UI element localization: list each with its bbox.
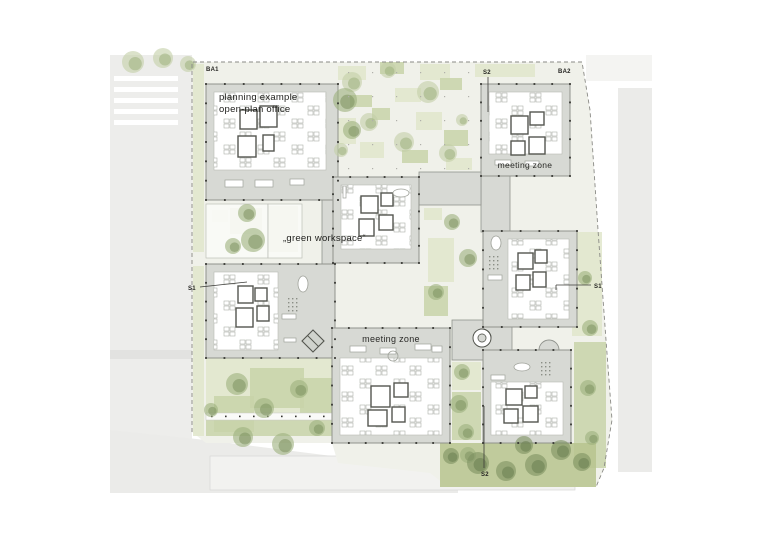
column-dot bbox=[557, 326, 559, 328]
column-dot bbox=[399, 442, 401, 444]
column-dot bbox=[576, 269, 578, 271]
column-dot bbox=[480, 120, 482, 122]
column-dot bbox=[449, 423, 451, 425]
column-dot bbox=[482, 326, 484, 328]
core-room bbox=[236, 308, 253, 327]
column-dot bbox=[262, 83, 264, 85]
column-dot bbox=[576, 326, 578, 328]
core-room bbox=[530, 112, 544, 125]
column-dot bbox=[224, 357, 226, 359]
core-room bbox=[518, 253, 533, 269]
context-block-northeast bbox=[586, 55, 652, 81]
column-dot bbox=[297, 263, 299, 265]
column-dot bbox=[539, 326, 541, 328]
column-dot bbox=[569, 83, 571, 85]
seat-dot bbox=[292, 306, 293, 307]
seat-dot bbox=[493, 264, 494, 265]
garden-court bbox=[268, 204, 302, 258]
seat-dot bbox=[288, 298, 289, 299]
column-dot bbox=[418, 211, 420, 213]
grid-dot bbox=[372, 120, 373, 121]
tree-crown bbox=[463, 428, 473, 438]
core-room bbox=[535, 250, 547, 263]
column-dot bbox=[520, 326, 522, 328]
furniture bbox=[225, 180, 243, 187]
grid-dot bbox=[468, 96, 469, 97]
tree-crown bbox=[230, 242, 240, 252]
label-s2-top: S2 bbox=[483, 70, 491, 76]
tree-crown bbox=[385, 66, 395, 76]
column-dot bbox=[569, 120, 571, 122]
column-dot bbox=[449, 365, 451, 367]
tree-crown bbox=[578, 458, 589, 469]
tree-crown bbox=[159, 54, 171, 66]
column-dot bbox=[449, 442, 451, 444]
column-dot bbox=[480, 102, 482, 104]
seat-dot bbox=[545, 370, 546, 371]
column-dot bbox=[482, 269, 484, 271]
seat-dot bbox=[541, 374, 542, 375]
column-dot bbox=[262, 199, 264, 201]
column-dot bbox=[418, 228, 420, 230]
column-dot bbox=[349, 262, 351, 264]
column-dot bbox=[418, 193, 420, 195]
column-dot bbox=[449, 346, 451, 348]
tree-crown bbox=[338, 147, 346, 155]
column-dot bbox=[337, 180, 339, 182]
column-dot bbox=[334, 338, 336, 340]
tree-crown bbox=[348, 126, 359, 137]
tree-crown bbox=[582, 275, 590, 283]
sidewalk-band bbox=[110, 350, 192, 359]
column-dot bbox=[337, 102, 339, 104]
core-room bbox=[238, 286, 253, 303]
column-dot bbox=[432, 327, 434, 329]
core-room bbox=[533, 272, 546, 287]
core-room bbox=[523, 406, 538, 422]
seat-dot bbox=[493, 256, 494, 257]
column-dot bbox=[482, 230, 484, 232]
core-room bbox=[255, 288, 267, 301]
furniture bbox=[488, 275, 502, 280]
column-dot bbox=[332, 262, 334, 264]
column-dot bbox=[332, 176, 334, 178]
grid-dot bbox=[468, 144, 469, 145]
grid-dot bbox=[396, 72, 397, 73]
column-dot bbox=[243, 199, 245, 201]
tree-crown bbox=[400, 138, 412, 150]
column-dot bbox=[334, 357, 336, 359]
planting-patch bbox=[420, 64, 450, 80]
core-room bbox=[516, 275, 530, 290]
grid-dot bbox=[396, 168, 397, 169]
neighbor-building-east bbox=[618, 88, 652, 472]
column-dot bbox=[332, 211, 334, 213]
crosswalk-stripe bbox=[114, 76, 178, 81]
column-dot bbox=[535, 442, 537, 444]
column-dot bbox=[569, 138, 571, 140]
grid-dot bbox=[444, 96, 445, 97]
corridor-connector bbox=[481, 176, 510, 232]
column-dot bbox=[331, 327, 333, 329]
grid-dot bbox=[372, 96, 373, 97]
tree-crown bbox=[520, 441, 531, 452]
column-dot bbox=[334, 320, 336, 322]
column-dot bbox=[449, 385, 451, 387]
seat-dot bbox=[549, 362, 550, 363]
column-dot bbox=[260, 357, 262, 359]
column-dot bbox=[337, 160, 339, 162]
tree-crown bbox=[243, 209, 254, 220]
pergola-post bbox=[253, 416, 255, 418]
pergola-post bbox=[309, 416, 311, 418]
column-dot bbox=[224, 83, 226, 85]
column-dot bbox=[334, 282, 336, 284]
furniture bbox=[282, 314, 296, 319]
seat-dot bbox=[296, 302, 297, 303]
pergola-post bbox=[295, 416, 297, 418]
road-west bbox=[110, 55, 192, 480]
seat-dot bbox=[541, 362, 542, 363]
column-dot bbox=[482, 249, 484, 251]
column-dot bbox=[432, 442, 434, 444]
column-dot bbox=[348, 327, 350, 329]
column-dot bbox=[297, 357, 299, 359]
column-dot bbox=[205, 83, 207, 85]
column-dot bbox=[316, 357, 318, 359]
column-dot bbox=[570, 386, 572, 388]
furniture bbox=[255, 180, 273, 187]
column-dot bbox=[205, 338, 207, 340]
tree-crown bbox=[314, 424, 324, 434]
column-dot bbox=[382, 442, 384, 444]
pergola-post bbox=[281, 416, 283, 418]
column-dot bbox=[401, 262, 403, 264]
column-dot bbox=[576, 230, 578, 232]
label-meeting-zone-south: meeting zone bbox=[362, 334, 420, 344]
column-dot bbox=[553, 442, 555, 444]
column-dot bbox=[539, 230, 541, 232]
column-dot bbox=[482, 368, 484, 370]
building-east-office-block bbox=[483, 231, 577, 327]
crosswalk-stripe bbox=[114, 87, 178, 92]
seat-dot bbox=[549, 370, 550, 371]
core-room bbox=[392, 407, 405, 422]
column-dot bbox=[498, 83, 500, 85]
column-dot bbox=[331, 346, 333, 348]
column-dot bbox=[569, 157, 571, 159]
grid-dot bbox=[468, 72, 469, 73]
tree-crown bbox=[464, 254, 475, 265]
corridor-connector bbox=[419, 172, 481, 205]
grid-dot bbox=[396, 120, 397, 121]
column-dot bbox=[449, 327, 451, 329]
column-dot bbox=[551, 83, 553, 85]
grid-dot bbox=[348, 96, 349, 97]
tree-crown bbox=[208, 407, 216, 415]
column-dot bbox=[279, 263, 281, 265]
column-dot bbox=[576, 249, 578, 251]
tree-crown bbox=[239, 433, 251, 445]
column-dot bbox=[299, 83, 301, 85]
planting-patch bbox=[424, 208, 442, 220]
grid-dot bbox=[372, 72, 373, 73]
column-dot bbox=[517, 349, 519, 351]
seat-dot bbox=[493, 268, 494, 269]
column-dot bbox=[480, 83, 482, 85]
seat-dot bbox=[296, 298, 297, 299]
core-room bbox=[506, 389, 522, 405]
column-dot bbox=[535, 349, 537, 351]
label-green-workspace: „green workspace“ bbox=[283, 233, 366, 244]
seat-dot bbox=[497, 260, 498, 261]
column-dot bbox=[520, 230, 522, 232]
desk-clusters bbox=[340, 358, 442, 435]
furniture bbox=[290, 179, 304, 185]
column-dot bbox=[551, 175, 553, 177]
seat-dot bbox=[541, 370, 542, 371]
site-plan-page: BA1 S2 BA2 planning example open-plan of… bbox=[0, 0, 780, 552]
seat-dot bbox=[292, 310, 293, 311]
seat-dot bbox=[549, 366, 550, 367]
core-room bbox=[511, 116, 528, 134]
column-dot bbox=[516, 175, 518, 177]
site-plan-drawing: BA1 S2 BA2 planning example open-plan of… bbox=[0, 0, 780, 552]
column-dot bbox=[205, 102, 207, 104]
seat-dot bbox=[549, 374, 550, 375]
grid-dot bbox=[396, 96, 397, 97]
column-dot bbox=[205, 320, 207, 322]
seat-dot bbox=[545, 374, 546, 375]
column-dot bbox=[517, 442, 519, 444]
seat-dot bbox=[497, 264, 498, 265]
column-dot bbox=[260, 263, 262, 265]
column-dot bbox=[331, 385, 333, 387]
planting-patch bbox=[444, 130, 468, 146]
column-dot bbox=[570, 349, 572, 351]
tree-crown bbox=[295, 385, 306, 396]
column-dot bbox=[349, 176, 351, 178]
grid-dot bbox=[420, 96, 421, 97]
column-dot bbox=[516, 83, 518, 85]
tree-crown bbox=[233, 379, 246, 392]
tree-crown bbox=[460, 117, 467, 124]
grid-dot bbox=[420, 168, 421, 169]
tree-crown bbox=[532, 460, 545, 473]
seat-dot bbox=[497, 256, 498, 257]
column-dot bbox=[418, 176, 420, 178]
grid-dot bbox=[444, 168, 445, 169]
core-room bbox=[361, 196, 378, 213]
planting-patch bbox=[440, 78, 462, 90]
column-dot bbox=[500, 349, 502, 351]
tree-crown bbox=[365, 118, 376, 129]
label-s1-west: S1 bbox=[188, 286, 196, 292]
column-dot bbox=[500, 442, 502, 444]
column-dot bbox=[318, 199, 320, 201]
pergola-post bbox=[323, 416, 325, 418]
tree-crown bbox=[474, 458, 487, 471]
tree-crown bbox=[557, 446, 569, 458]
column-dot bbox=[576, 307, 578, 309]
column-dot bbox=[576, 288, 578, 290]
column-dot bbox=[480, 175, 482, 177]
column-dot bbox=[480, 138, 482, 140]
column-dot bbox=[337, 122, 339, 124]
pergola-post bbox=[239, 416, 241, 418]
grid-dot bbox=[348, 120, 349, 121]
seat-dot bbox=[545, 362, 546, 363]
column-dot bbox=[281, 199, 283, 201]
grid-dot bbox=[372, 168, 373, 169]
furniture bbox=[415, 344, 431, 350]
column-dot bbox=[367, 176, 369, 178]
seat-dot bbox=[292, 302, 293, 303]
crosswalk-stripe bbox=[114, 109, 178, 114]
column-dot bbox=[482, 386, 484, 388]
column-dot bbox=[281, 83, 283, 85]
column-dot bbox=[569, 175, 571, 177]
tree-crown bbox=[248, 235, 262, 249]
grid-dot bbox=[372, 144, 373, 145]
column-dot bbox=[205, 301, 207, 303]
column-dot bbox=[279, 357, 281, 359]
furniture bbox=[432, 346, 442, 352]
grid-dot bbox=[444, 144, 445, 145]
column-dot bbox=[205, 263, 207, 265]
core-room bbox=[368, 410, 387, 426]
core-room bbox=[257, 306, 269, 321]
core-room bbox=[263, 135, 274, 151]
tree-crown bbox=[448, 452, 458, 462]
column-dot bbox=[365, 327, 367, 329]
column-dot bbox=[569, 102, 571, 104]
column-dot bbox=[205, 180, 207, 182]
column-dot bbox=[399, 327, 401, 329]
column-dot bbox=[401, 176, 403, 178]
tree-crown bbox=[185, 60, 195, 70]
core-room bbox=[381, 193, 393, 206]
column-dot bbox=[501, 230, 503, 232]
furniture bbox=[350, 346, 366, 352]
column-dot bbox=[570, 424, 572, 426]
column-dot bbox=[334, 301, 336, 303]
crosswalk-stripe bbox=[114, 120, 178, 125]
column-dot bbox=[224, 263, 226, 265]
column-dot bbox=[299, 199, 301, 201]
spiral-stair-core bbox=[478, 334, 486, 342]
column-dot bbox=[498, 175, 500, 177]
grid-dot bbox=[420, 144, 421, 145]
grid-dot bbox=[468, 168, 469, 169]
column-dot bbox=[205, 199, 207, 201]
furniture bbox=[491, 375, 505, 380]
grid-dot bbox=[444, 120, 445, 121]
building-meeting-zone-south-block bbox=[332, 328, 450, 443]
seat-dot bbox=[288, 310, 289, 311]
oval-table bbox=[393, 189, 409, 197]
seat-dot bbox=[489, 256, 490, 257]
column-dot bbox=[534, 175, 536, 177]
core-room bbox=[238, 136, 256, 157]
label-ba1: BA1 bbox=[206, 67, 219, 73]
seat-dot bbox=[497, 268, 498, 269]
column-dot bbox=[415, 442, 417, 444]
tree-crown bbox=[279, 439, 292, 452]
column-dot bbox=[337, 83, 339, 85]
building-southeast-office-block bbox=[483, 340, 571, 443]
furniture bbox=[284, 338, 296, 342]
planting-patch bbox=[395, 88, 421, 102]
column-dot bbox=[480, 157, 482, 159]
label-planning-example: planning example bbox=[219, 92, 297, 103]
label-open-plan-office: open-plan office bbox=[219, 104, 290, 115]
seat-dot bbox=[489, 264, 490, 265]
column-dot bbox=[224, 199, 226, 201]
tree-crown bbox=[260, 404, 272, 416]
seat-dot bbox=[541, 366, 542, 367]
oval-table bbox=[514, 363, 530, 371]
column-dot bbox=[482, 349, 484, 351]
column-dot bbox=[415, 327, 417, 329]
planting-patch bbox=[428, 238, 454, 282]
column-dot bbox=[418, 245, 420, 247]
building-west-office-block bbox=[206, 264, 335, 358]
planting-patch bbox=[402, 150, 428, 163]
furniture bbox=[343, 186, 346, 198]
column-dot bbox=[205, 282, 207, 284]
grid-dot bbox=[396, 144, 397, 145]
column-dot bbox=[337, 199, 339, 201]
tree-crown bbox=[424, 87, 437, 100]
core-room bbox=[379, 215, 393, 230]
tree-crown bbox=[340, 95, 354, 109]
seat-dot bbox=[489, 260, 490, 261]
label-s1-east: S1 bbox=[594, 284, 602, 290]
oval-table bbox=[491, 236, 501, 250]
column-dot bbox=[553, 349, 555, 351]
column-dot bbox=[331, 442, 333, 444]
grid-dot bbox=[444, 72, 445, 73]
column-dot bbox=[331, 404, 333, 406]
core-room bbox=[529, 137, 545, 154]
tree-crown bbox=[587, 324, 597, 334]
column-dot bbox=[205, 122, 207, 124]
column-dot bbox=[243, 83, 245, 85]
pergola-post bbox=[225, 416, 227, 418]
seat-dot bbox=[296, 306, 297, 307]
label-ba2: BA2 bbox=[558, 69, 571, 75]
tree-crown bbox=[129, 57, 142, 70]
column-dot bbox=[534, 83, 536, 85]
column-dot bbox=[332, 228, 334, 230]
seat-dot bbox=[296, 310, 297, 311]
building-green-workspace-block bbox=[333, 177, 419, 263]
planting-patch bbox=[193, 64, 204, 252]
planting-patch bbox=[416, 112, 442, 130]
column-dot bbox=[557, 230, 559, 232]
column-dot bbox=[337, 141, 339, 143]
tree-crown bbox=[449, 218, 459, 228]
column-dot bbox=[332, 193, 334, 195]
column-dot bbox=[570, 368, 572, 370]
tree-crown bbox=[589, 435, 597, 443]
grid-dot bbox=[348, 72, 349, 73]
grid-dot bbox=[348, 144, 349, 145]
core-room bbox=[525, 386, 537, 398]
tree-crown bbox=[455, 400, 466, 411]
column-dot bbox=[418, 262, 420, 264]
